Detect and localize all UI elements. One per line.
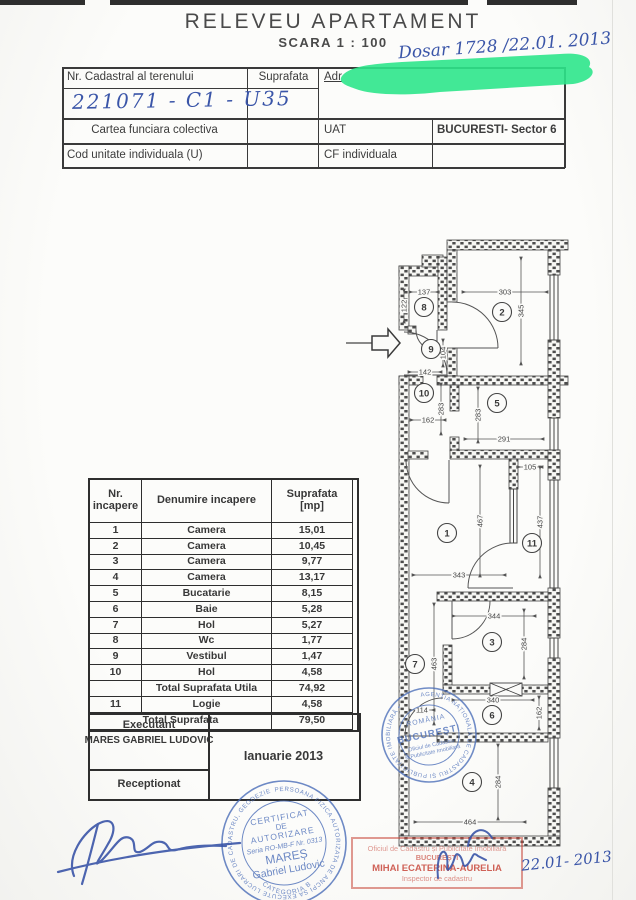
dimension-label: 437 (536, 516, 545, 529)
dimension-label: 283 (474, 409, 483, 422)
certificate-line6: Gabriel Ludovic (252, 857, 326, 881)
dimension-label: 162 (535, 707, 544, 720)
table-cell-area: 5,27 (272, 618, 353, 634)
certificate-line2: DE (275, 821, 288, 832)
table-cell-area: 1,77 (272, 634, 353, 650)
footer-table-border (90, 769, 208, 771)
column-header-denumire: Denumire incapere (142, 480, 272, 523)
scan-edge-artifact (0, 0, 85, 5)
table-cell-nr (90, 681, 142, 697)
table-cell-name: Logie (142, 697, 272, 713)
red-stamp-line3: MIHAI ECATERINA-AURELIA (372, 863, 502, 874)
table-cell-area: 15,01 (272, 523, 353, 539)
table-cell-area: 4,58 (272, 665, 353, 681)
info-table-border (432, 118, 433, 168)
dimension-label: 343 (453, 571, 466, 580)
dimension-label: 284 (494, 776, 503, 789)
dimension-label: 467 (476, 515, 485, 528)
room-number-label: 3 (489, 637, 494, 648)
handwritten-cadastral-number: 221071 - C1 - U35 (72, 86, 292, 114)
nr-cadastral-label: Nr. Cadastral al terenului (67, 71, 194, 83)
table-cell-nr: 10 (90, 665, 142, 681)
entrance-arrow-icon (346, 329, 400, 357)
table-cell-name: Camera (142, 539, 272, 555)
rooms-area-table: Nr. incapere Denumire incapere Suprafata… (88, 478, 359, 732)
dimension-label: 291 (498, 435, 511, 444)
scanned-document-page: RELEVEU APARTAMENT SCARA 1 : 100 Nr. Cad… (0, 0, 636, 900)
table-cell-nr: 1 (90, 523, 142, 539)
certificate-line7: CATEGORIA B (260, 873, 314, 900)
certificate-line3: AUTORIZARE (250, 825, 315, 846)
adresa-label: Adr (324, 71, 342, 83)
room-number-label: 2 (499, 307, 504, 318)
uat-value: BUCURESTI- Sector 6 (437, 124, 557, 136)
room-number-label: 5 (494, 398, 500, 409)
table-cell-name: Camera (142, 555, 272, 571)
room-number-label: 8 (421, 302, 426, 313)
table-cell-name: Total Suprafata Utila (142, 681, 272, 697)
cod-unitate-label: Cod unitate individuala (U) (67, 149, 203, 161)
room-number-label: 10 (419, 388, 430, 399)
info-table-border (564, 67, 566, 168)
dimension-label: 463 (430, 658, 439, 671)
dimension-label: 303 (499, 288, 512, 297)
plan-walls (399, 240, 568, 846)
table-cell-area: 9,77 (272, 555, 353, 571)
signature-executant (58, 821, 240, 884)
table-cell-name: Hol (142, 618, 272, 634)
table-cell-nr: 11 (90, 697, 142, 713)
table-cell-nr: 8 (90, 634, 142, 650)
table-cell-nr: 4 (90, 570, 142, 586)
dimension-label: 344 (488, 612, 501, 621)
scan-fold-line (612, 0, 613, 900)
table-cell-name: Vestibul (142, 649, 272, 665)
dimension-label: 284 (520, 638, 529, 651)
dimension-label: 114 (416, 706, 428, 715)
svg-text:CATEGORIA B: CATEGORIA B (260, 873, 314, 900)
room-number-label: 9 (428, 344, 433, 355)
column-header-suprafata: Suprafata [mp] (272, 480, 353, 523)
table-cell-area: 1,47 (272, 649, 353, 665)
room-number-label: 4 (469, 777, 475, 788)
cartea-funciara-label: Cartea funciara colectiva (62, 124, 247, 136)
cf-individuala-label: CF individuala (324, 149, 397, 161)
info-table-border (62, 67, 565, 69)
table-cell-area: 5,28 (272, 602, 353, 618)
table-cell-name: Camera (142, 523, 272, 539)
table-cell-name: Wc (142, 634, 272, 650)
floor-plan: 1371223033451041422831622832911054674373… (340, 230, 600, 860)
dimension-label: 122 (400, 300, 409, 313)
scan-edge-artifact (487, 0, 577, 5)
table-cell-nr: 3 (90, 555, 142, 571)
table-cell-area: 4,58 (272, 697, 353, 713)
info-table-border (62, 143, 565, 145)
table-cell-area: 10,45 (272, 539, 353, 555)
dimension-label: 345 (517, 305, 526, 318)
table-cell-name: Hol (142, 665, 272, 681)
column-header-nr: Nr. incapere (90, 480, 142, 523)
suprafata-label: Suprafata (250, 71, 317, 83)
uat-label: UAT (324, 124, 346, 136)
executant-label: Executant (90, 719, 208, 731)
room-number-label: 11 (527, 538, 538, 549)
dimension-label: 105 (524, 463, 537, 472)
dimension-label: 340 (487, 696, 500, 705)
date-value: Ianuarie 2013 (208, 749, 359, 763)
info-table-border (62, 118, 565, 120)
table-cell-nr: 9 (90, 649, 142, 665)
table-cell-name: Bucatarie (142, 586, 272, 602)
table-cell-area: 13,17 (272, 570, 353, 586)
scan-edge-artifact (110, 0, 468, 5)
info-table-border (62, 167, 565, 169)
dimension-label: 137 (418, 288, 431, 297)
info-table-border (247, 67, 248, 168)
table-cell-name: Camera (142, 570, 272, 586)
table-cell-name: Baie (142, 602, 272, 618)
info-table-border (62, 67, 64, 168)
room-number-label: 1 (444, 528, 450, 539)
red-stamp-line4: Inspector de cadastru (402, 874, 472, 883)
dimension-label: 283 (437, 403, 446, 416)
table-cell-nr: 5 (90, 586, 142, 602)
certificate-line1: CERTIFICAT (249, 807, 309, 827)
document-title: RELEVEU APARTAMENT (30, 10, 636, 34)
executant-table: Executant MARES GABRIEL LUDOVIC Receptio… (88, 713, 361, 801)
dimension-label: 464 (464, 818, 477, 827)
certificate-line4: Seria RO-MB-F Nr. 0313 (246, 836, 323, 856)
table-cell-nr: 2 (90, 539, 142, 555)
executant-name: MARES GABRIEL LUDOVIC (75, 735, 223, 746)
receptionat-label: Receptionat (90, 778, 208, 790)
table-cell-area: 8,15 (272, 586, 353, 602)
table-cell-nr: 7 (90, 618, 142, 634)
green-highlighter-mark (341, 54, 593, 95)
info-table-border (318, 67, 319, 168)
dimension-label: 142 (419, 368, 432, 377)
room-number-label: 7 (412, 659, 417, 670)
table-cell-nr: 6 (90, 602, 142, 618)
dimension-label: 162 (422, 416, 435, 425)
table-cell-area: 74,92 (272, 681, 353, 697)
shaft-box (490, 683, 522, 696)
room-number-label: 6 (489, 710, 494, 721)
certificate-line5: MAREȘ (264, 846, 308, 867)
